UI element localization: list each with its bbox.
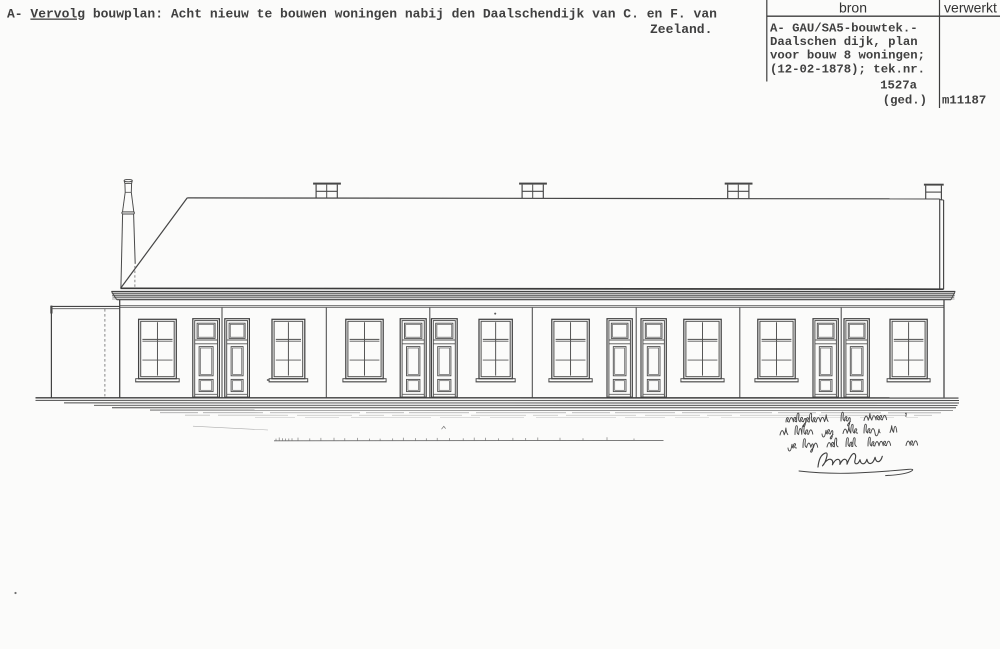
svg-text:Zeeland.: Zeeland. — [650, 22, 712, 37]
svg-text:voor bouw 8 woningen;: voor bouw 8 woningen; — [770, 49, 925, 63]
svg-text:Daalschen dijk, plan: Daalschen dijk, plan — [770, 35, 918, 49]
svg-text:m11187: m11187 — [942, 94, 986, 108]
svg-text:(12-02-1878); tek.nr.: (12-02-1878); tek.nr. — [770, 63, 925, 77]
svg-text:A- Vervolg bouwplan: Acht nieu: A- Vervolg bouwplan: Acht nieuw te bouwe… — [7, 7, 717, 22]
svg-text:(ged.): (ged.) — [883, 94, 927, 108]
svg-text:A- GAU/SA5-bouwtek.-: A- GAU/SA5-bouwtek.- — [770, 22, 918, 36]
svg-text:bron: bron — [839, 0, 867, 16]
svg-text:1527a: 1527a — [880, 79, 918, 93]
svg-text:verwerkt: verwerkt — [944, 0, 997, 16]
